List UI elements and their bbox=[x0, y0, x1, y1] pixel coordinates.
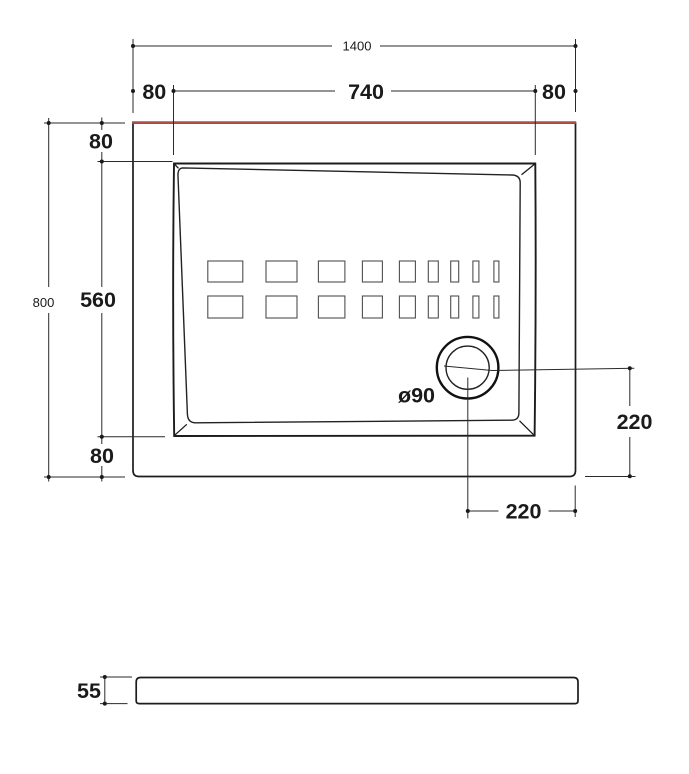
svg-text:220: 220 bbox=[506, 500, 542, 524]
svg-text:80: 80 bbox=[89, 130, 113, 154]
svg-text:ø90: ø90 bbox=[398, 384, 435, 408]
svg-text:220: 220 bbox=[617, 410, 653, 434]
svg-text:55: 55 bbox=[77, 679, 101, 703]
svg-text:1400: 1400 bbox=[343, 39, 372, 54]
svg-text:80: 80 bbox=[90, 444, 114, 468]
svg-text:560: 560 bbox=[80, 288, 116, 312]
svg-text:80: 80 bbox=[142, 80, 166, 104]
svg-text:740: 740 bbox=[348, 80, 384, 104]
svg-text:800: 800 bbox=[33, 295, 55, 310]
svg-text:80: 80 bbox=[542, 80, 566, 104]
